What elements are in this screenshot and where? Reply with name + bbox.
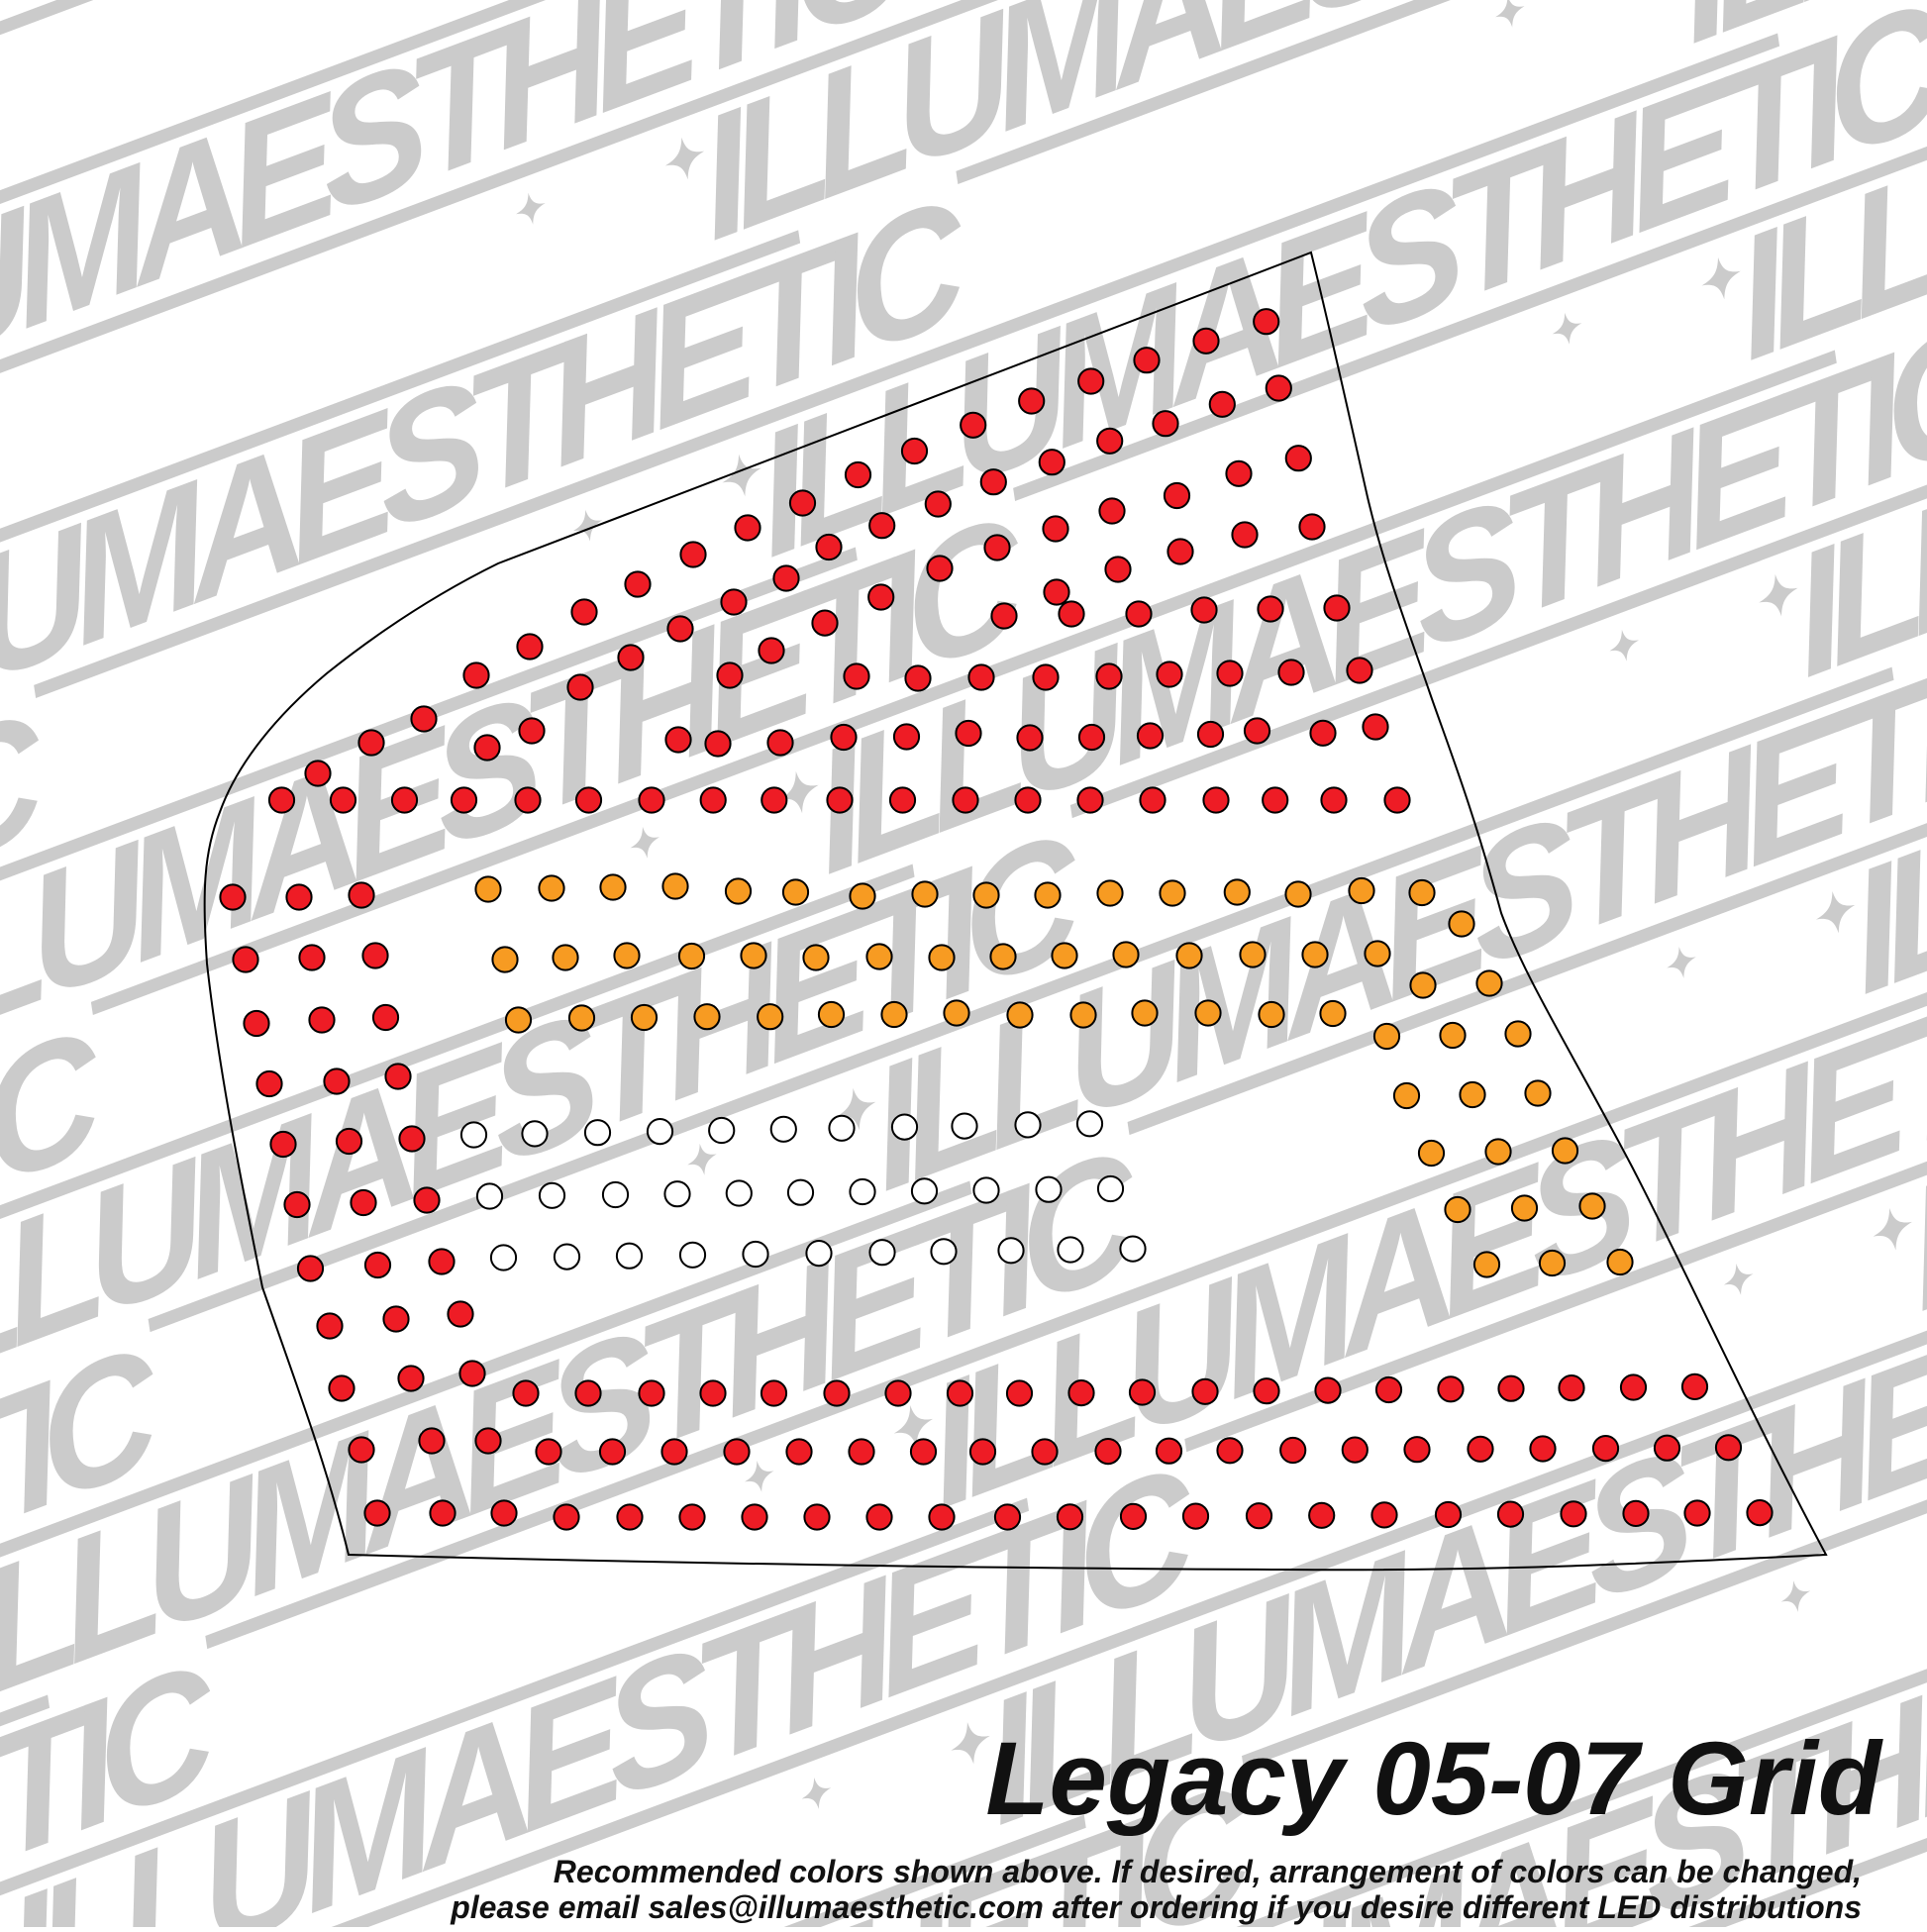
svg-text:please email sales@illumaesthe: please email sales@illumaesthetic.com af…: [450, 1889, 1862, 1925]
svg-text:Recommended colors shown above: Recommended colors shown above. If desir…: [554, 1854, 1862, 1889]
svg-text:Legacy 05-07 Grid: Legacy 05-07 Grid: [985, 1721, 1882, 1837]
